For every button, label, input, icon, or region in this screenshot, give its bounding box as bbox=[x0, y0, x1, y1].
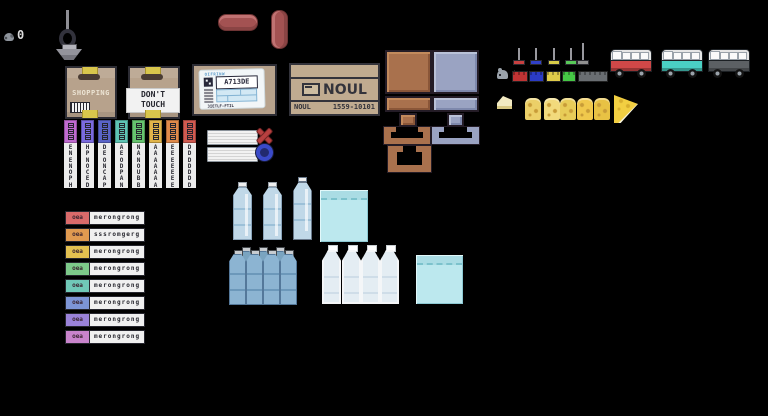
shovel-blade bbox=[56, 49, 82, 60]
bracket-hook bbox=[418, 127, 423, 132]
glyph-icon bbox=[102, 135, 108, 140]
bottle-body bbox=[293, 182, 312, 240]
cheese-chunk bbox=[577, 98, 593, 120]
cheese-chunk bbox=[525, 98, 541, 120]
sausage-horizontal bbox=[218, 14, 258, 31]
pin bbox=[513, 48, 525, 65]
van-wheel bbox=[666, 69, 675, 78]
newspaper-title: DEONCAP bbox=[98, 143, 111, 188]
item-label: oea merongrong bbox=[65, 245, 145, 259]
serial-code: 1559-10101 bbox=[333, 103, 375, 111]
glyph-icon bbox=[187, 135, 193, 140]
pin bbox=[565, 48, 577, 65]
pin-stick bbox=[582, 43, 584, 61]
item-label: oea merongrong bbox=[65, 279, 145, 293]
bracket-hook bbox=[467, 127, 472, 132]
newspaper-header bbox=[132, 120, 145, 143]
cheese-slice-small bbox=[497, 96, 512, 109]
grid-cell bbox=[217, 90, 240, 96]
van-window bbox=[663, 51, 673, 60]
water-bottle bbox=[233, 182, 252, 240]
sprite-sheet-canvas: 0 SHOPPING DON'T TOUCH OIFRINW A713DE bbox=[0, 0, 768, 416]
glyph-icon bbox=[153, 135, 159, 140]
brick bbox=[578, 71, 608, 82]
label-text: merongrong bbox=[90, 246, 144, 258]
label-badge: oea bbox=[66, 280, 90, 292]
bottle-highlight bbox=[305, 189, 308, 231]
bottle bbox=[361, 245, 380, 304]
noul-box: NOUL NOUL 1559-10101 bbox=[289, 63, 380, 116]
bottle-highlight bbox=[245, 194, 248, 236]
van-window bbox=[631, 52, 640, 60]
newspaper-title: ENENOPH bbox=[64, 143, 77, 188]
water-bottle bbox=[263, 182, 282, 240]
van-wheel bbox=[637, 69, 646, 78]
brick bbox=[529, 71, 544, 82]
newspaper-header bbox=[166, 120, 179, 143]
newspaper: DDDDDDD bbox=[183, 120, 196, 188]
warning-line1: DON'T bbox=[127, 90, 179, 100]
bottle-highlight bbox=[275, 194, 278, 236]
glyph-icon bbox=[153, 129, 159, 134]
pin bbox=[530, 48, 542, 65]
ice-block bbox=[416, 255, 463, 304]
item-label: oea merongrong bbox=[65, 211, 145, 225]
glyph-icon bbox=[85, 129, 91, 134]
bottle bbox=[342, 245, 361, 304]
van-wheel bbox=[688, 69, 697, 78]
glyph-icon bbox=[119, 129, 125, 134]
mouse-icon bbox=[4, 33, 14, 41]
label-text: merongrong bbox=[90, 212, 144, 224]
van-window bbox=[640, 52, 649, 60]
pin-base bbox=[513, 60, 525, 65]
glyph-icon bbox=[102, 129, 108, 134]
grid-cell bbox=[217, 96, 227, 101]
label-text: merongrong bbox=[90, 297, 144, 309]
water-bottle bbox=[293, 177, 312, 240]
label-badge: oea bbox=[66, 297, 90, 309]
newspaper-header bbox=[98, 120, 111, 143]
newspaper-title: AAAAAAA bbox=[149, 143, 162, 188]
shipping-box: OIFRINW A713DE 3IETLF-FTIL bbox=[192, 64, 277, 116]
brick bbox=[512, 71, 528, 82]
glyph-icon bbox=[187, 129, 193, 134]
bottle-cap bbox=[268, 182, 277, 187]
pin-base bbox=[577, 60, 589, 65]
barcode bbox=[204, 88, 213, 102]
mouse-ear bbox=[498, 68, 502, 72]
newspaper: HPNOCED bbox=[81, 120, 94, 188]
crate-peg-blue bbox=[447, 113, 464, 127]
pin bbox=[548, 48, 560, 65]
newspaper-title: DDDDDDD bbox=[183, 143, 196, 188]
label-text: merongrong bbox=[90, 331, 144, 343]
glyph-icon bbox=[170, 129, 176, 134]
van-window bbox=[729, 52, 738, 60]
sausage-vertical bbox=[271, 10, 288, 49]
white-bottle-group bbox=[322, 245, 400, 304]
label-badge: oea bbox=[66, 263, 90, 275]
cheese-chunk bbox=[560, 98, 576, 120]
glyph-icon bbox=[85, 135, 91, 140]
glyph-icon bbox=[68, 135, 74, 140]
glyph-icon bbox=[153, 123, 159, 128]
van-teal bbox=[661, 49, 703, 78]
grid-cell bbox=[241, 89, 256, 94]
glyph-icon bbox=[136, 123, 142, 128]
circle-mark-icon bbox=[256, 144, 273, 161]
van-window bbox=[738, 52, 747, 60]
bottle-cap bbox=[298, 177, 307, 182]
box-handle bbox=[141, 74, 163, 80]
label-badge: oea bbox=[66, 229, 90, 241]
newspaper-header bbox=[149, 120, 162, 143]
label-text: merongrong bbox=[90, 314, 144, 326]
shopping-box: SHOPPING bbox=[65, 66, 117, 119]
glyph-icon bbox=[187, 123, 193, 128]
pin-base bbox=[548, 60, 560, 65]
mouse-sprite bbox=[495, 66, 513, 80]
bottle bbox=[380, 245, 399, 304]
envelope-logo-icon bbox=[302, 83, 320, 96]
label-text: merongrong bbox=[90, 280, 144, 292]
filter-bar bbox=[207, 130, 258, 145]
label-badge: oea bbox=[66, 314, 90, 326]
tracking-code: A713DE bbox=[216, 75, 258, 89]
tape-strip bbox=[145, 110, 161, 118]
van-red bbox=[610, 49, 652, 78]
glyph-icon bbox=[170, 135, 176, 140]
item-label: oea merongrong bbox=[65, 313, 145, 327]
warning-line2: TOUCH bbox=[127, 100, 179, 110]
qr-code-icon bbox=[204, 78, 213, 87]
van-window bbox=[682, 52, 691, 60]
pin-base bbox=[530, 60, 542, 65]
van-wheel bbox=[713, 69, 722, 78]
crate-panel-brown bbox=[385, 50, 432, 94]
bottle bbox=[280, 250, 297, 305]
crate-handle-brown bbox=[388, 146, 431, 172]
item-label: oea sssromgerg bbox=[65, 228, 145, 242]
label-badge: oea bbox=[66, 246, 90, 258]
cheese-wedge-big bbox=[614, 95, 638, 123]
brand-band: NOUL bbox=[291, 79, 378, 102]
item-label: oea merongrong bbox=[65, 330, 145, 344]
bottle-body bbox=[233, 187, 252, 240]
bracket-hook bbox=[397, 146, 403, 152]
ice-block bbox=[320, 190, 368, 242]
label-text: merongrong bbox=[90, 263, 144, 275]
glyph-icon bbox=[136, 129, 142, 134]
pin-base bbox=[565, 60, 577, 65]
van-window bbox=[691, 52, 700, 60]
brand-logo: NOUL bbox=[323, 83, 367, 97]
brick bbox=[562, 71, 576, 82]
crate-peg-brown bbox=[399, 113, 417, 127]
glyph-icon bbox=[119, 123, 125, 128]
cheese-chunk bbox=[544, 98, 560, 120]
tape-strip bbox=[82, 110, 98, 118]
glyph-icon bbox=[102, 123, 108, 128]
filter-bar bbox=[207, 147, 258, 162]
crate-bracket-brown bbox=[384, 127, 430, 144]
glyph-icon bbox=[119, 135, 125, 140]
shovel-icon bbox=[56, 10, 84, 60]
mouse-eye bbox=[499, 74, 501, 76]
glyph-icon bbox=[85, 123, 91, 128]
label-text: sssromgerg bbox=[90, 229, 144, 241]
glyph-icon bbox=[136, 135, 142, 140]
crate-bracket-blue bbox=[432, 127, 479, 144]
shipping-label: OIFRINW A713DE 3IETLF-FTIL bbox=[200, 69, 265, 109]
cheese-chunk bbox=[594, 98, 610, 120]
label-grid bbox=[216, 88, 257, 102]
newspaper: AAAAAAA bbox=[149, 120, 162, 188]
item-label: oea merongrong bbox=[65, 296, 145, 310]
shopping-box-label: SHOPPING bbox=[67, 89, 115, 97]
bottle-body bbox=[263, 187, 282, 240]
van-wheel bbox=[615, 69, 624, 78]
van-window bbox=[710, 51, 720, 60]
bracket-hook bbox=[439, 127, 444, 132]
bottle bbox=[322, 245, 341, 304]
newspaper-header bbox=[115, 120, 128, 143]
box-bottom-band: NOUL 1559-10101 bbox=[291, 102, 378, 112]
shovel-handle bbox=[66, 10, 69, 31]
newspaper: NANOUBB bbox=[132, 120, 145, 188]
glyph-icon bbox=[68, 129, 74, 134]
bottle bbox=[263, 250, 280, 305]
crate-bar-brown bbox=[385, 96, 432, 112]
van-window bbox=[720, 52, 729, 60]
newspaper-header bbox=[64, 120, 77, 143]
van-window bbox=[673, 52, 682, 60]
pin bbox=[577, 43, 589, 65]
crate-panel-blue bbox=[432, 50, 479, 94]
x-mark-icon bbox=[255, 126, 274, 145]
van-grey bbox=[708, 49, 750, 78]
bottle-cap bbox=[238, 182, 247, 187]
bottle-pack bbox=[229, 247, 299, 305]
newspaper-title: AEODPAN bbox=[115, 143, 128, 188]
van-window bbox=[622, 52, 631, 60]
glyph-icon bbox=[68, 123, 74, 128]
item-label: oea merongrong bbox=[65, 262, 145, 276]
label-badge: oea bbox=[66, 331, 90, 343]
dont-touch-box: DON'T TOUCH bbox=[128, 66, 180, 119]
crate-bar-blue bbox=[432, 96, 479, 112]
newspaper-header bbox=[81, 120, 94, 143]
brand-small: NOUL bbox=[294, 103, 311, 111]
label-badge: oea bbox=[66, 212, 90, 224]
bottle bbox=[246, 250, 263, 305]
brick bbox=[546, 71, 561, 82]
newspaper-title: HPNOCED bbox=[81, 143, 94, 188]
bracket-hook bbox=[416, 146, 422, 152]
box-handle bbox=[78, 74, 100, 80]
newspaper-header bbox=[183, 120, 196, 143]
newspaper: EEEEEEE bbox=[166, 120, 179, 188]
van-wheel bbox=[735, 69, 744, 78]
van-window bbox=[612, 51, 622, 60]
bracket-hook bbox=[391, 127, 396, 132]
newspaper-title: NANOUBB bbox=[132, 143, 145, 188]
shipping-label-footer: 3IETLF-FTIL bbox=[207, 103, 234, 109]
counter-value: 0 bbox=[17, 28, 24, 42]
grid-cell bbox=[228, 95, 256, 101]
glyph-icon bbox=[170, 123, 176, 128]
bottle bbox=[229, 250, 246, 305]
newspaper: ENENOPH bbox=[64, 120, 77, 188]
newspaper: AEODPAN bbox=[115, 120, 128, 188]
newspaper-title: EEEEEEE bbox=[166, 143, 179, 188]
box-top-band bbox=[291, 65, 378, 79]
newspaper: DEONCAP bbox=[98, 120, 111, 188]
